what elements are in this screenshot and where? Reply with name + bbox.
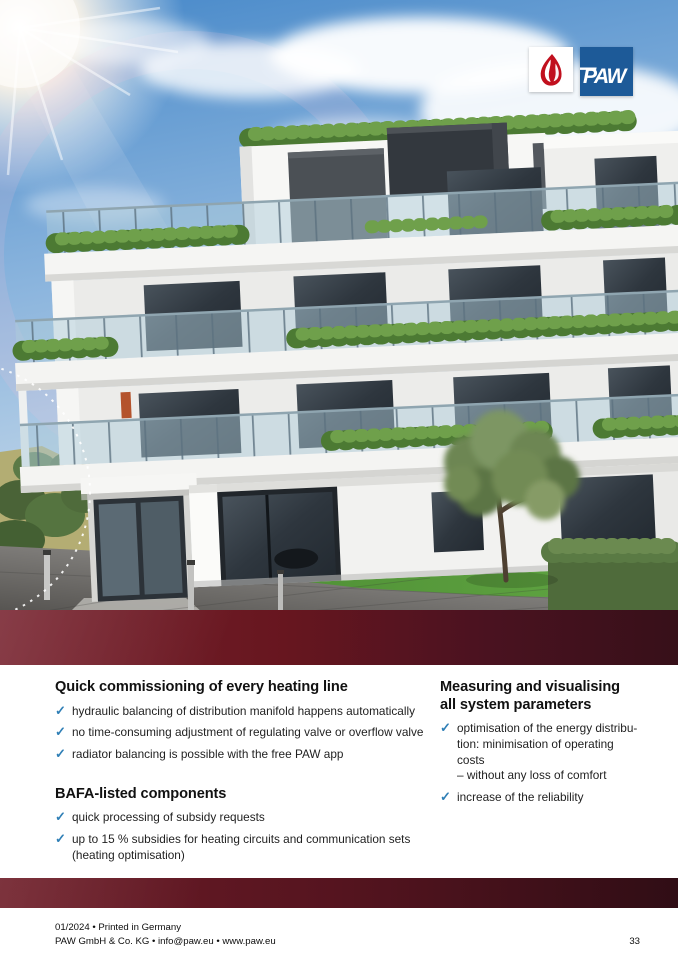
list-item-text: increase of the reliability: [457, 790, 584, 806]
section-heading: BAFA-listed components: [55, 786, 427, 804]
red-band-top: [0, 610, 678, 665]
section-quick-commissioning: Quick commissioning of every heating lin…: [55, 679, 427, 763]
checkmark-icon: ✓: [55, 703, 72, 719]
page-footer: 01/2024 • Printed in Germany PAW GmbH & …: [55, 921, 640, 948]
list-item-text: up to 15 % subsidies for heating circuit…: [72, 832, 410, 864]
brochure-page: PAW Quick commissioning of every heating…: [0, 0, 678, 959]
list-item: ✓ increase of the reliability: [440, 790, 640, 806]
left-column: Quick commissioning of every heating lin…: [55, 679, 427, 870]
checkmark-icon: ✓: [440, 789, 457, 805]
footer-lines: 01/2024 • Printed in Germany PAW GmbH & …: [55, 921, 276, 948]
checkmark-icon: ✓: [55, 724, 72, 740]
footer-edition-line: 01/2024 • Printed in Germany: [55, 921, 276, 935]
list-item-text: radiator balancing is possible with the …: [72, 747, 343, 763]
section-heading: Measuring and visualising all system par…: [440, 679, 640, 714]
list-item: ✓ radiator balancing is possible with th…: [55, 747, 427, 763]
section-measuring: Measuring and visualising all system par…: [440, 679, 640, 806]
section-bafa: BAFA-listed components ✓ quick processin…: [55, 786, 427, 864]
list-item: ✓ quick processing of subsidy requests: [55, 810, 427, 826]
right-column: Measuring and visualising all system par…: [440, 679, 640, 812]
hedge: [548, 546, 678, 610]
list-item: ✓ optimisation of the energy distribu- t…: [440, 721, 640, 784]
list-item-text: quick processing of subsidy requests: [72, 810, 265, 826]
red-band-bottom: [0, 878, 678, 908]
list-item: ✓ no time-consuming adjustment of regula…: [55, 725, 427, 741]
section-heading: Quick commissioning of every heating lin…: [55, 679, 427, 697]
list-item-text: no time-consuming adjustment of regulati…: [72, 725, 423, 741]
page-number: 33: [629, 935, 640, 949]
checkmark-icon: ✓: [55, 809, 72, 825]
list-item-text: optimisation of the energy distribu- tio…: [457, 721, 640, 784]
list-item: ✓ up to 15 % subsidies for heating circu…: [55, 832, 427, 864]
checkmark-icon: ✓: [55, 746, 72, 762]
building-photo: PAW: [0, 0, 678, 610]
paw-logo: PAW: [529, 47, 633, 96]
list-item: ✓ hydraulic balancing of distribution ma…: [55, 704, 427, 720]
paw-wordmark: PAW: [580, 47, 633, 96]
list-item-text: hydraulic balancing of distribution mani…: [72, 704, 415, 720]
checkmark-icon: ✓: [55, 831, 72, 847]
flame-icon: [529, 47, 573, 92]
footer-company-line: PAW GmbH & Co. KG • info@paw.eu • www.pa…: [55, 935, 276, 949]
checkmark-icon: ✓: [440, 720, 457, 736]
